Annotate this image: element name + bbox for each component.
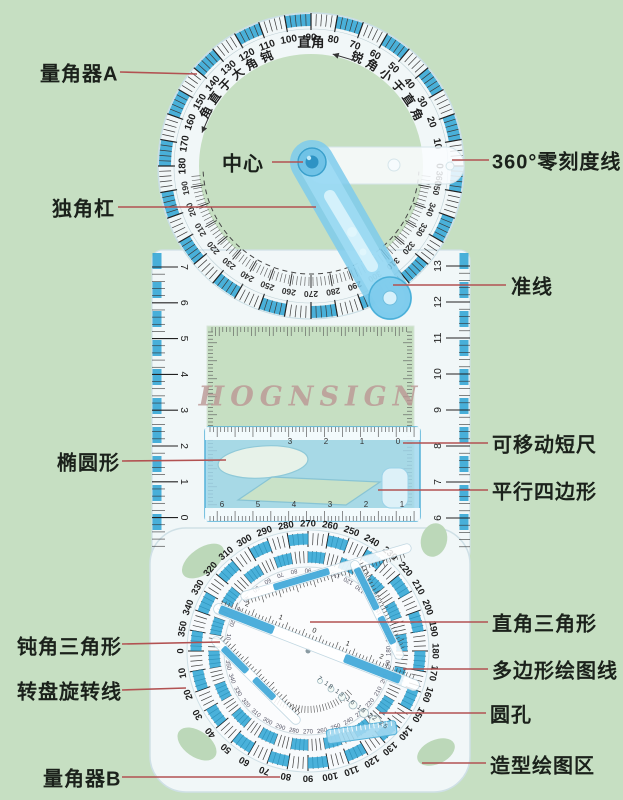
svg-text:2: 2 <box>364 500 369 509</box>
svg-text:0: 0 <box>176 648 187 653</box>
label-movable-ruler: 可移动短尺 <box>492 429 597 458</box>
svg-text:10: 10 <box>432 368 444 380</box>
label-obtuse-triangle: 钝角三角形 <box>17 631 122 660</box>
svg-text:4: 4 <box>178 371 190 377</box>
svg-text:11: 11 <box>432 332 444 343</box>
svg-text:13: 13 <box>432 260 444 272</box>
svg-text:3: 3 <box>328 500 333 509</box>
label-rotary-line: 转盘旋转线 <box>17 676 122 705</box>
svg-text:180: 180 <box>178 157 189 174</box>
svg-text:6: 6 <box>178 300 190 306</box>
product-annotation-scene: 0102030405060708090100110120130140150160… <box>0 0 623 800</box>
right-angle-text: 直角 <box>298 34 325 50</box>
label-drawing-area: 造型绘图区 <box>490 750 595 779</box>
label-guide-line: 准线 <box>511 271 553 300</box>
leader-ellipse <box>122 460 226 461</box>
svg-text:2: 2 <box>178 443 190 449</box>
svg-text:6: 6 <box>432 515 444 521</box>
svg-text:0: 0 <box>178 515 190 521</box>
svg-text:180: 180 <box>429 643 440 659</box>
svg-text:270: 270 <box>303 730 314 736</box>
leader-protractor-a <box>120 72 197 74</box>
svg-text:1: 1 <box>360 437 365 446</box>
svg-text:7: 7 <box>178 264 190 270</box>
label-round-holes: 圆孔 <box>490 699 532 728</box>
svg-text:90: 90 <box>304 566 311 572</box>
svg-text:5: 5 <box>178 336 190 342</box>
label-protractor-a: 量角器A <box>40 58 118 87</box>
svg-text:9: 9 <box>432 407 444 413</box>
label-ellipse: 椭圆形 <box>57 447 120 476</box>
label-protractor-b: 量角器B <box>43 763 121 792</box>
svg-text:6: 6 <box>220 500 225 509</box>
brand-watermark: HOGNSIGN <box>199 382 424 413</box>
label-single-bar: 独角杠 <box>52 193 115 222</box>
label-polygon-lines: 多边形绘图线 <box>492 655 618 684</box>
svg-text:7: 7 <box>432 479 444 485</box>
label-parallelogram: 平行四边形 <box>492 476 597 505</box>
svg-text:270: 270 <box>304 289 318 299</box>
movable-short-ruler <box>205 427 420 521</box>
svg-text:3: 3 <box>178 407 190 413</box>
svg-text:2: 2 <box>324 437 329 446</box>
svg-text:12: 12 <box>432 296 444 308</box>
svg-text:10: 10 <box>177 667 190 679</box>
label-center: 中心 <box>222 148 264 177</box>
svg-text:90: 90 <box>303 772 314 783</box>
svg-text:80: 80 <box>280 770 292 783</box>
label-right-triangle: 直角三角形 <box>492 608 597 637</box>
svg-text:5: 5 <box>256 500 261 509</box>
svg-text:1: 1 <box>400 500 405 509</box>
label-zero-line: 360°零刻度线 <box>492 146 621 175</box>
svg-text:4: 4 <box>292 500 297 509</box>
svg-text:8: 8 <box>432 443 444 449</box>
svg-text:1: 1 <box>178 479 190 485</box>
svg-text:3: 3 <box>288 437 293 446</box>
svg-text:0: 0 <box>396 437 401 446</box>
svg-text:270: 270 <box>300 519 316 530</box>
